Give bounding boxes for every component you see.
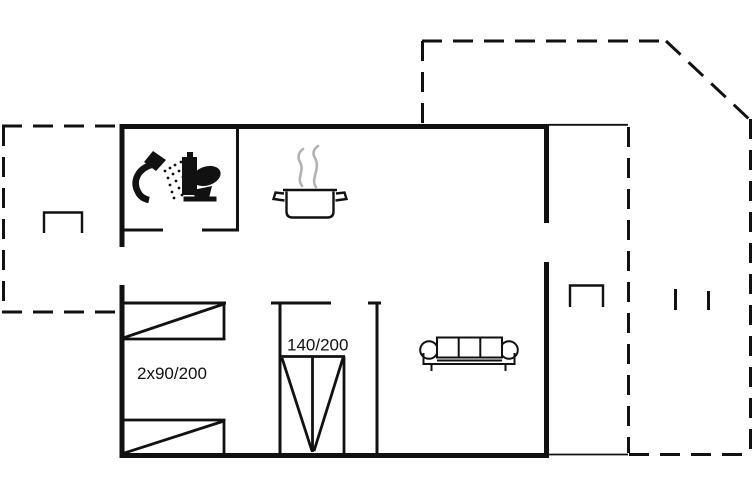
double-bed-size-label: 140/200: [287, 336, 348, 355]
floor-plan-canvas: 2x90/200 140/200: [0, 0, 754, 498]
twin-beds-size-label: 2x90/200: [137, 364, 207, 383]
sofa-backrest: [437, 338, 502, 358]
toilet-base: [184, 197, 217, 202]
floor-plan: 2x90/200 140/200: [0, 0, 754, 498]
pot-body: [287, 192, 334, 218]
toilet-button: [187, 152, 193, 157]
